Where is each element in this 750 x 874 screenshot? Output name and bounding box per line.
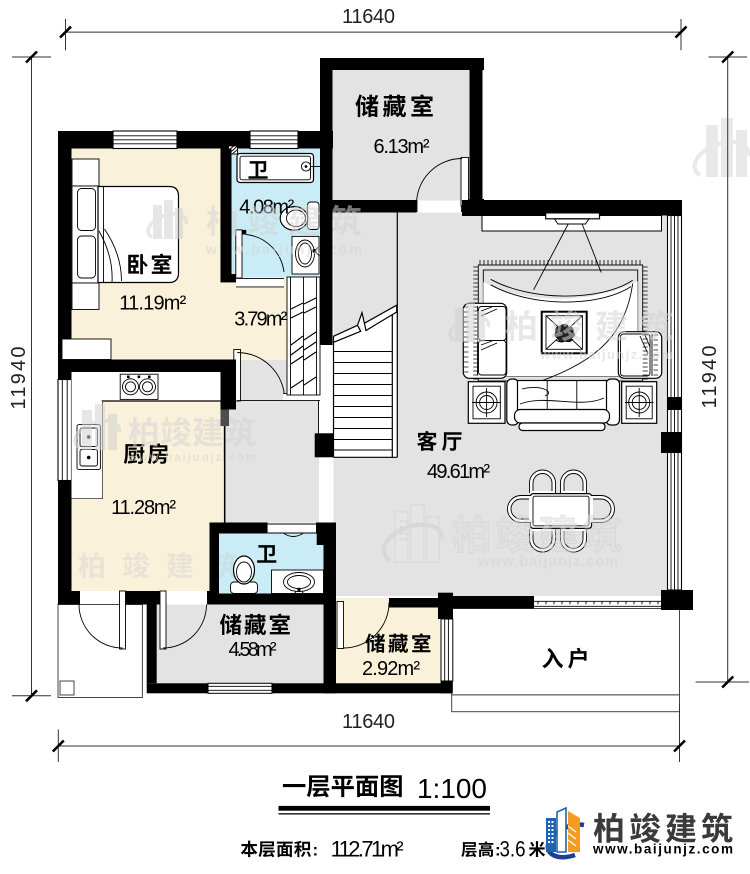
svg-text:11640: 11640 [342,711,395,733]
svg-text:11940: 11940 [699,346,721,409]
svg-text:112.71m²: 112.71m² [331,837,404,862]
svg-text:11.19m²: 11.19m² [119,293,186,315]
svg-text:11640: 11640 [342,6,395,28]
svg-text:2.92m²: 2.92m² [362,658,420,680]
svg-text:11940: 11940 [8,347,30,410]
svg-text:1:100: 1:100 [417,773,487,804]
svg-text:11.28m²: 11.28m² [111,497,176,519]
svg-text:3.6: 3.6 [500,837,526,862]
svg-text:www.baijunjz.com: www.baijunjz.com [477,554,618,570]
svg-text:3.79m²: 3.79m² [234,309,287,331]
svg-text:49.61m²: 49.61m² [427,461,490,483]
svg-text::: : [313,841,319,860]
svg-text:6.13m²: 6.13m² [374,136,430,158]
svg-text:www.baijunjz.com: www.baijunjz.com [539,347,673,362]
svg-text:4.58m²: 4.58m² [229,639,277,661]
